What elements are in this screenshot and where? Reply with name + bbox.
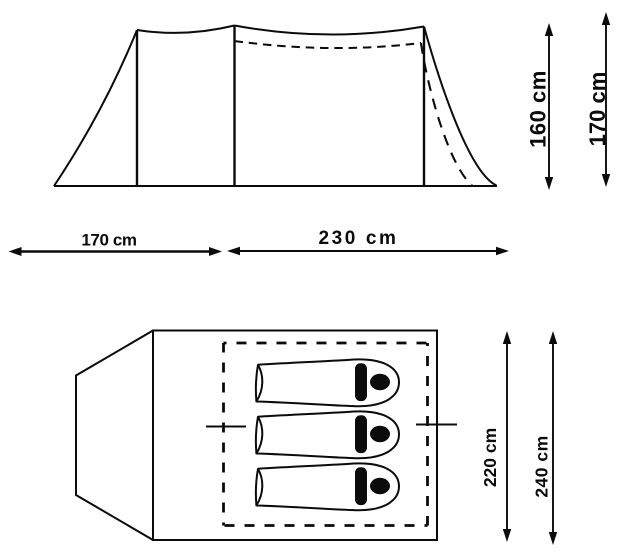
svg-text:170 cm: 170 cm	[585, 72, 610, 147]
svg-text:240 cm: 240 cm	[532, 435, 552, 497]
svg-text:220 cm: 220 cm	[480, 428, 500, 487]
svg-text:170 cm: 170 cm	[81, 230, 137, 249]
svg-text:160 cm: 160 cm	[525, 70, 550, 148]
svg-text:230 cm: 230 cm	[318, 228, 398, 249]
